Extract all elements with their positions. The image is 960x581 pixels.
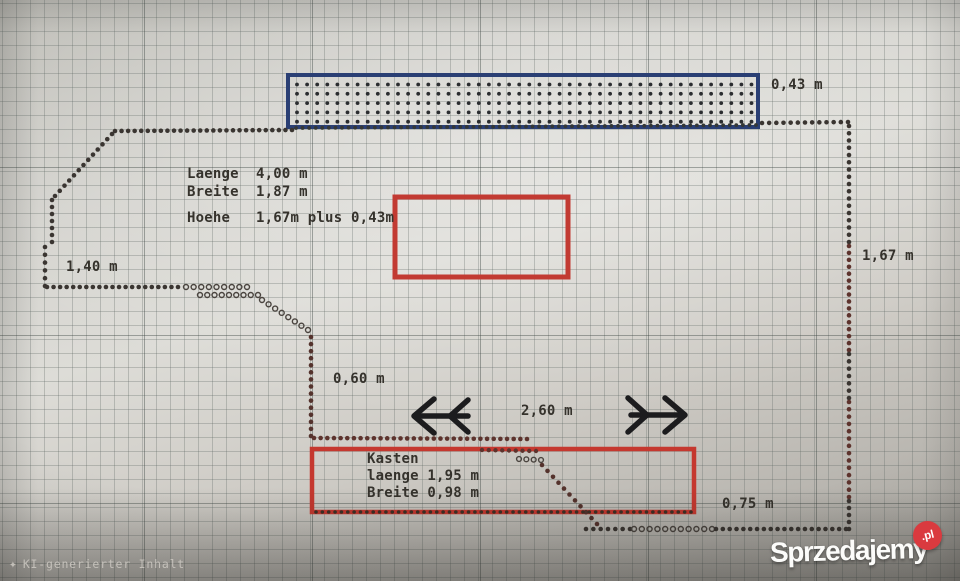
watermark-brand-text: Sprzedajemy (770, 533, 928, 569)
label-dim-0-43: 0,43 m (771, 77, 823, 93)
outline-bottom-run-1 (584, 527, 633, 532)
label-dim-0-75: 0,75 m (722, 496, 774, 512)
label-kasten-title: Kasten (367, 451, 419, 467)
ai-content-note: ✦ KI-generierter Inhalt (9, 557, 185, 571)
outline-left-lower (43, 245, 48, 289)
label-dim-1-67: 1,67 m (862, 248, 914, 264)
label-dim-2-60: 2,60 m (521, 403, 573, 419)
outline-right-2 (847, 244, 852, 353)
label-dim-0-60: 0,60 m (333, 371, 385, 387)
outline-corner-steps (53, 132, 115, 199)
sprzedajemy-watermark: Sprzedajemy .pl (770, 521, 950, 576)
outline-right-4 (847, 400, 852, 500)
roof-box-outline (288, 75, 758, 127)
outline-right-3 (847, 352, 852, 401)
label-laenge-total: Laenge 4,00 m (187, 166, 308, 182)
photographed-dimension-sketch: Laenge 4,00 mBreite 1,87 mHoehe 1,67m pl… (0, 0, 960, 581)
kasten-staircase (540, 463, 600, 527)
inner-horizontal (312, 436, 530, 442)
outline-right-1 (847, 124, 852, 245)
arrow-right (628, 398, 685, 432)
red-box-middle (395, 197, 568, 277)
outline-bottom-hollow (632, 527, 715, 532)
outline-top-left (113, 128, 295, 134)
label-breite-total: Breite 1,87 m (187, 184, 308, 200)
roof-box-outline-dot-fill (295, 83, 753, 124)
kasten-hollow-run (517, 457, 544, 463)
inner-vertical (309, 335, 314, 439)
label-kasten-breite: Breite 0,98 m (367, 485, 479, 501)
label-hoehe-total: Hoehe 1,67m plus 0,43m (187, 210, 394, 226)
outline-bottom-left-run (45, 285, 181, 290)
ai-content-text: KI-generierter Inhalt (23, 557, 185, 571)
arrow-left (414, 399, 468, 433)
watermark-badge-text: .pl (920, 528, 935, 543)
outline-left-upper (50, 198, 55, 245)
label-dim-1-40: 1,40 m (66, 259, 118, 275)
sparkle-icon: ✦ (9, 558, 17, 571)
outline-top-right (760, 120, 851, 126)
hollow-run-1 (184, 285, 250, 290)
hollow-staircase (260, 298, 311, 333)
hollow-run-2 (198, 293, 261, 298)
label-kasten-laenge: laenge 1,95 m (367, 468, 479, 484)
